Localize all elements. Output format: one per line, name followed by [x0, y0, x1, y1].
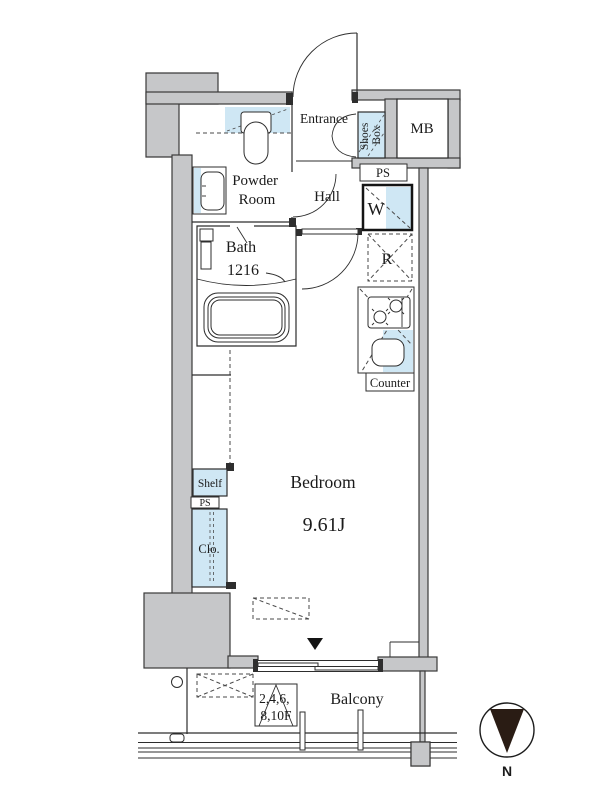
washer-pan-blue	[386, 187, 411, 229]
pipe-space-left-label: PS	[199, 498, 210, 509]
window-panel-left	[258, 663, 318, 667]
bedroom-area: Bedroom 9.61J	[253, 472, 419, 657]
wall-top-left	[146, 92, 292, 104]
hall-door-jamb-left	[296, 229, 302, 236]
bath-leader-line	[266, 273, 285, 282]
refrigerator-label: R	[382, 251, 393, 268]
shoes-box-door-arc-bottom	[332, 136, 356, 157]
balcony-partition-foot	[170, 734, 184, 742]
balcony-drain-pipe	[411, 742, 430, 766]
vanity-splash	[194, 168, 201, 213]
bedroom-size-label: 9.61J	[303, 514, 346, 536]
hall-door-swing-arc	[302, 233, 358, 289]
railing-post-left	[300, 712, 305, 750]
stove-burner-front	[374, 311, 386, 323]
hall-door-leaf	[302, 229, 358, 234]
orientation-marker-triangle	[307, 638, 323, 650]
pipe-space-top-label: PS	[376, 166, 390, 180]
floor-plan-drawing: Entrance Shoes Box MB PS	[0, 0, 600, 800]
pillar-bottom-left	[144, 593, 230, 668]
balcony-area: 2,4,6, 8,10F Balcony	[138, 668, 457, 766]
bathtub-inner	[211, 300, 282, 335]
door-jamb-left	[286, 93, 293, 105]
shelf-label: Shelf	[198, 478, 222, 490]
hall-label: Hall	[314, 189, 340, 205]
kitchen-sink	[372, 339, 404, 366]
wall-left	[172, 155, 192, 595]
bedroom-label: Bedroom	[290, 472, 356, 492]
wall-right	[419, 168, 428, 658]
kitchen-area: W R Counter	[358, 185, 414, 391]
bath-label: Bath 1216	[226, 239, 260, 279]
balcony-railing	[138, 733, 457, 758]
wall-balcony-right	[420, 671, 425, 742]
entrance-door-swing-arc	[293, 33, 357, 97]
bath-area: Bath 1216	[192, 226, 296, 467]
bathtub-apron-curve	[197, 279, 296, 286]
bedroom-dashed-diag	[253, 598, 309, 619]
window-cap-left	[253, 659, 258, 672]
balcony-drain-circle	[172, 677, 183, 688]
window-cap-right	[378, 659, 383, 672]
pillar-top-left	[146, 73, 218, 157]
floor-plan-page: Entrance Shoes Box MB PS	[0, 0, 600, 800]
compass: N	[480, 703, 534, 779]
vanity-basin	[201, 172, 224, 210]
closet-label: Clo.	[198, 542, 219, 556]
storage-column: Shelf PS Clo.	[191, 463, 236, 589]
stove-burner-rear	[390, 300, 402, 312]
wall-bottom-right-band	[378, 657, 437, 671]
counter-label: Counter	[370, 376, 411, 390]
sliding-window	[253, 659, 383, 672]
bath-ledge-upper	[200, 229, 213, 241]
storage-jamb-bottom	[226, 582, 236, 589]
powder-room-label: Powder Room	[232, 173, 282, 208]
bath-ledge-lower	[201, 242, 211, 269]
washer-label: W	[368, 199, 385, 219]
toilet-bowl	[244, 122, 268, 164]
meter-box-label: MB	[410, 121, 433, 137]
balcony-label: Balcony	[330, 691, 383, 708]
hall-area: Hall	[296, 189, 362, 289]
wall-mb-left	[385, 99, 397, 159]
railing-post-right	[358, 710, 363, 750]
north-arrow-icon	[490, 709, 524, 753]
compass-north-label: N	[502, 763, 512, 779]
window-panel-right	[315, 667, 378, 671]
